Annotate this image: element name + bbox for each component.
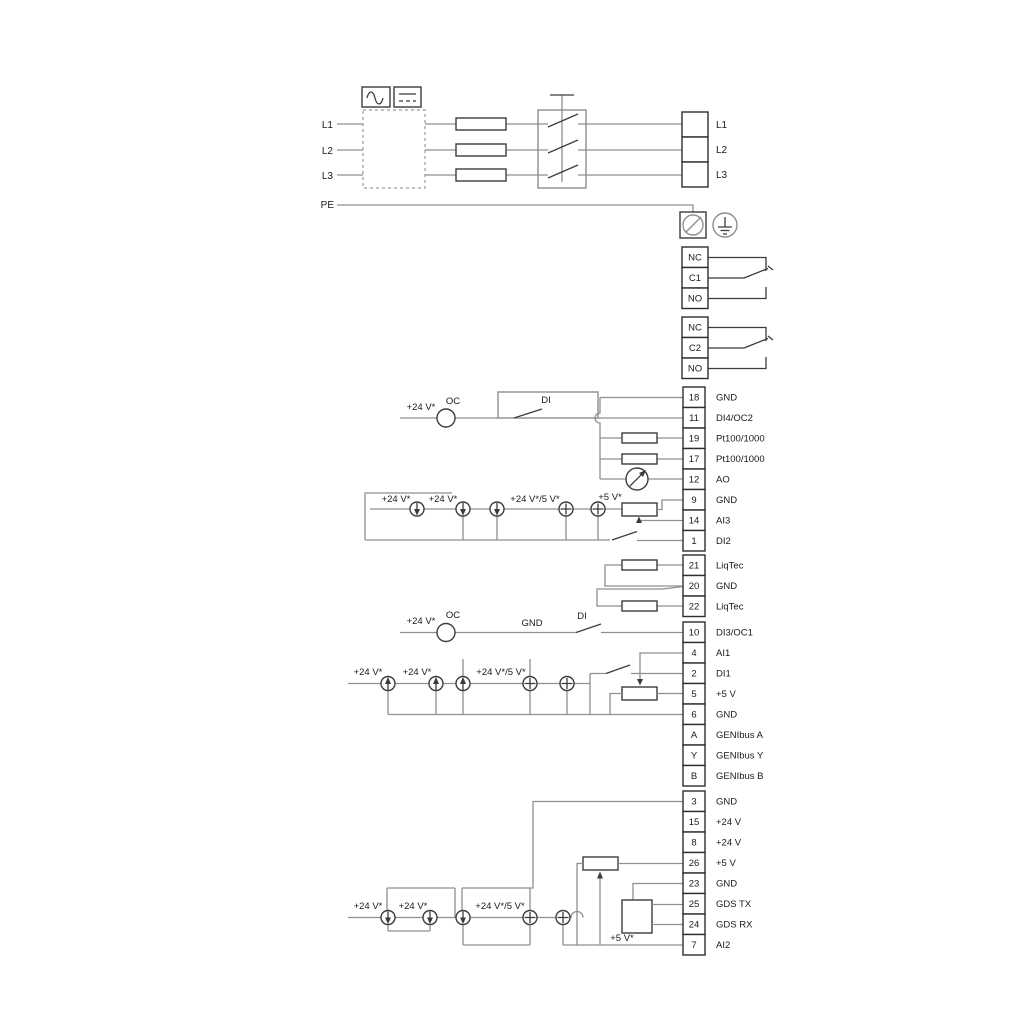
voltage-source-3 <box>523 677 537 691</box>
terminal-label: GDS RX <box>716 920 753 931</box>
current-source-4 <box>381 677 395 691</box>
terminal-label: GND <box>716 879 737 890</box>
terminal-label: GND <box>716 495 737 506</box>
annotation-label: +24 V*/5 V* <box>475 901 525 912</box>
relay-contact-2 <box>708 328 773 369</box>
io-top-wiring <box>400 392 683 490</box>
terminal-number: 7 <box>691 940 696 951</box>
liqtec-sensor-1 <box>622 560 657 570</box>
current-source-7 <box>381 911 395 925</box>
annotation-label: +24 V* <box>407 616 436 627</box>
terminal-label: AI1 <box>716 648 730 659</box>
terminal-label: GENIbus A <box>716 730 764 741</box>
power-section <box>337 87 737 238</box>
terminal-block-liqtec: 21LiqTec20GND22LiqTec <box>683 555 744 617</box>
wiring-diagram: L1L2L3NCC1NONCC2NO18GND11DI4/OC219Pt100/… <box>0 0 1024 1024</box>
voltage-source-6 <box>556 911 570 925</box>
annotation-label: +24 V*/5 V* <box>476 667 526 678</box>
diagram-labels: L1L2L3PE+24 V*OCDI+24 V*+24 V*+24 V*/5 V… <box>321 120 634 944</box>
relay-block-1: NCC1NO <box>682 247 708 309</box>
voltage-source-1 <box>559 502 573 516</box>
power-input-label: L3 <box>322 171 334 182</box>
relay-terminal-label: C2 <box>689 343 701 354</box>
terminal-number: 2 <box>691 669 696 680</box>
annotation-label: +24 V* <box>382 494 411 505</box>
terminal-number: 3 <box>691 797 696 808</box>
dc-symbol-box <box>394 87 421 107</box>
relay-terminal-label: NC <box>688 323 702 334</box>
terminal-block-io-mid: 10DI3/OC14AI12DI15+5 V6GNDAGENIbus AYGEN… <box>683 622 764 786</box>
current-source-8 <box>423 911 437 925</box>
terminal-cell <box>682 162 708 187</box>
terminal-number: B <box>691 771 697 782</box>
annotation-label: +24 V* <box>429 494 458 505</box>
terminal-cell <box>682 137 708 162</box>
pe-screw-terminal <box>680 212 706 238</box>
current-source-1 <box>410 502 424 516</box>
power-terminal-label: L2 <box>716 145 728 156</box>
voltage-source-2 <box>591 502 605 516</box>
oc-open-collector-1 <box>437 409 455 427</box>
annotation-label: OC <box>446 396 460 407</box>
terminal-label: DI3/OC1 <box>716 628 753 639</box>
terminal-label: GENIbus Y <box>716 751 764 762</box>
annotation-label: +5 V* <box>610 933 634 944</box>
terminal-label: Pt100/1000 <box>716 454 765 465</box>
power-terminal-label: L3 <box>716 170 728 181</box>
terminal-label: DI2 <box>716 536 731 547</box>
annotation-label: +5 V* <box>598 492 622 503</box>
annotation-label: +24 V* <box>354 667 383 678</box>
power-input-label: L1 <box>322 120 334 131</box>
terminal-number: 20 <box>689 581 700 592</box>
terminal-number: 8 <box>691 838 696 849</box>
terminal-number: 10 <box>689 628 700 639</box>
fuse-1 <box>456 118 506 130</box>
terminal-label: +24 V <box>716 817 742 828</box>
terminal-number: 25 <box>689 899 700 910</box>
terminal-label: GND <box>716 393 737 404</box>
terminal-number: 15 <box>689 817 700 828</box>
terminal-label: AO <box>716 475 730 486</box>
terminal-number: 17 <box>689 454 700 465</box>
potentiometer-ai3 <box>622 500 683 523</box>
earth-ground-icon <box>713 213 737 237</box>
annotation-label: DI <box>577 611 587 622</box>
voltage-source-4 <box>560 677 574 691</box>
terminal-number: 1 <box>691 536 696 547</box>
terminal-number: 4 <box>691 648 696 659</box>
power-input-label: L2 <box>322 146 334 157</box>
terminal-label: DI4/OC2 <box>716 413 753 424</box>
relay-terminal-label: C1 <box>689 273 701 284</box>
current-source-6 <box>456 677 470 691</box>
current-source-3 <box>490 502 504 516</box>
terminal-number: 18 <box>689 393 700 404</box>
ac-symbol-box <box>362 87 390 107</box>
terminal-number: 21 <box>689 561 700 572</box>
oc-open-collector-2 <box>437 624 455 642</box>
relay-terminal-label: NO <box>688 294 702 305</box>
terminal-number: 23 <box>689 879 700 890</box>
terminal-number: 5 <box>691 689 696 700</box>
pt100-resistor-2 <box>622 454 657 464</box>
terminal-number: 22 <box>689 602 700 613</box>
annotation-label: +24 V* <box>403 667 432 678</box>
potentiometer-ai1 <box>610 653 683 715</box>
terminal-label: Pt100/1000 <box>716 434 765 445</box>
terminal-number: 12 <box>689 475 700 486</box>
liqtec-sensor-2 <box>622 601 657 611</box>
disconnect-switch <box>538 95 586 188</box>
terminal-number: 11 <box>689 413 699 424</box>
power-input-labels: L1L2L3PE <box>321 120 335 211</box>
terminal-label: GND <box>716 581 737 592</box>
di3-switch <box>576 624 601 633</box>
terminal-label: GENIbus B <box>716 771 764 782</box>
terminal-label: AI3 <box>716 516 730 527</box>
terminal-label: +24 V <box>716 838 742 849</box>
fuse-3 <box>456 169 506 181</box>
terminal-label: LiqTec <box>716 602 744 613</box>
current-source-2 <box>456 502 470 516</box>
annotation-label: +24 V* <box>407 402 436 413</box>
terminal-block-io-bottom: 3GND15+24 V8+24 V26+5 V23GND25GDS TX24GD… <box>683 791 753 955</box>
terminal-block-power: L1L2L3 <box>682 112 728 187</box>
terminal-number: 14 <box>689 516 700 527</box>
current-source-5 <box>429 677 443 691</box>
terminal-number: Y <box>691 751 698 762</box>
voltage-source-5 <box>523 911 537 925</box>
terminal-label: DI1 <box>716 669 731 680</box>
di2-switch <box>612 532 683 541</box>
current-source-9 <box>456 911 470 925</box>
rcd-filter-box <box>363 110 425 188</box>
annotation-label: OC <box>446 610 460 621</box>
terminal-label: GND <box>716 710 737 721</box>
annotation-label: DI <box>541 395 551 406</box>
terminal-label: +5 V <box>716 689 736 700</box>
power-input-label: PE <box>321 200 335 211</box>
terminal-number: 19 <box>689 434 700 445</box>
terminal-number: 6 <box>691 710 696 721</box>
terminal-label: LiqTec <box>716 561 744 572</box>
terminal-number: 26 <box>689 858 700 869</box>
annotation-label: GND <box>521 618 542 629</box>
gds-sensor-box <box>622 884 683 934</box>
relay-contact-1 <box>708 258 773 299</box>
terminal-number: A <box>691 730 698 741</box>
annotation-label: +24 V* <box>354 901 383 912</box>
ao-gauge-icon <box>626 468 648 490</box>
terminal-number: 9 <box>691 495 696 506</box>
annotation-label: +24 V*/5 V* <box>510 494 560 505</box>
relay-terminal-label: NO <box>688 364 702 375</box>
power-wires <box>337 124 693 212</box>
terminal-label: +5 V <box>716 858 736 869</box>
relay-terminal-label: NC <box>688 253 702 264</box>
terminal-number: 24 <box>689 920 700 931</box>
terminal-label: GND <box>716 797 737 808</box>
pt100-resistor-1 <box>622 433 657 443</box>
io-bottom-wiring <box>348 802 683 946</box>
relay-block-2: NCC2NO <box>682 317 708 379</box>
fuse-2 <box>456 144 506 156</box>
power-terminal-label: L1 <box>716 120 728 131</box>
liqtec-wiring <box>597 560 683 611</box>
terminal-label: GDS TX <box>716 899 752 910</box>
terminal-block-io-top: 18GND11DI4/OC219Pt100/100017Pt100/100012… <box>683 387 765 551</box>
terminal-label: AI2 <box>716 940 730 951</box>
terminal-cell <box>682 112 708 137</box>
annotation-label: +24 V* <box>399 901 428 912</box>
